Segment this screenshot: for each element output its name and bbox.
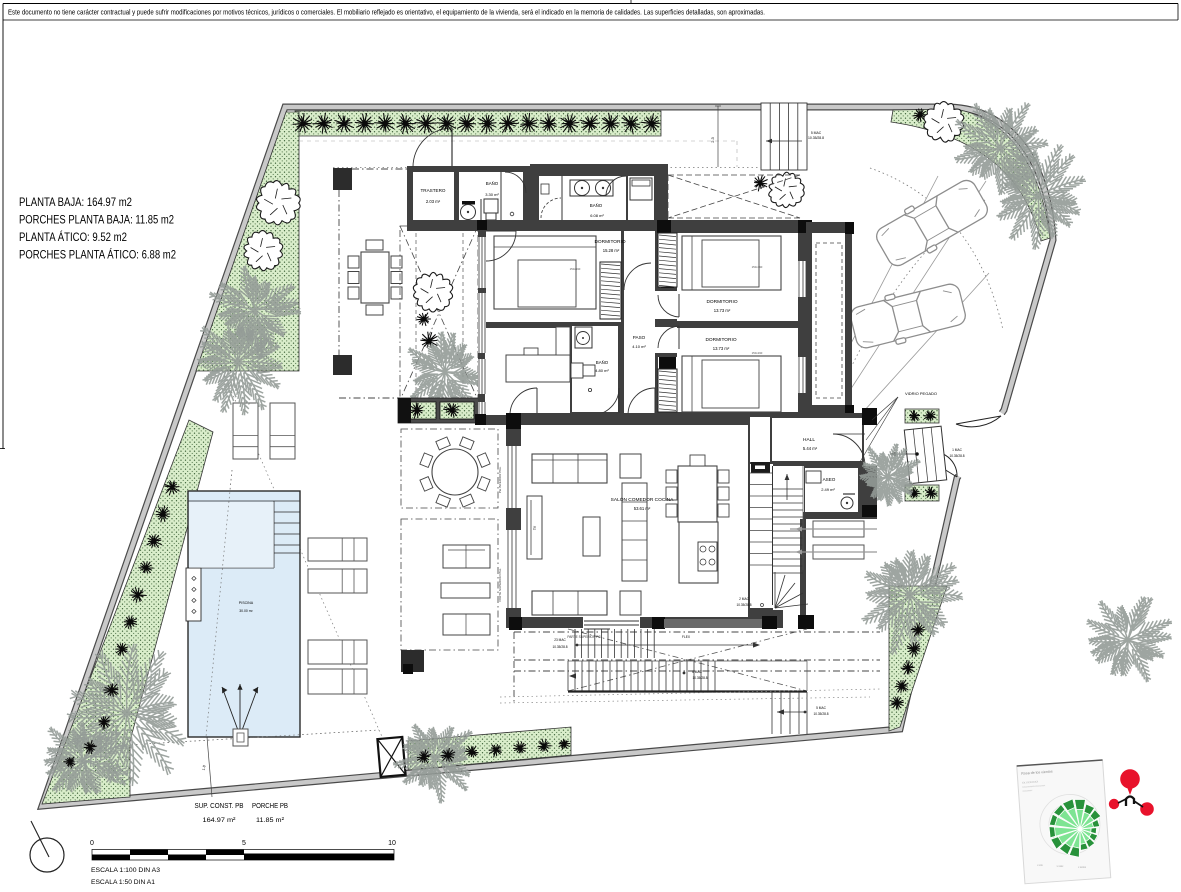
svg-text:1 MAC: 1 MAC <box>952 448 962 452</box>
svg-text:2.3: 2.3 <box>710 136 715 142</box>
svg-text:x xxxxx: x xxxxx <box>1078 866 1087 869</box>
svg-text:10.35/28.8: 10.35/28.8 <box>949 454 964 458</box>
svg-text:4.10 m²: 4.10 m² <box>632 344 646 349</box>
svg-text:23 MAC: 23 MAC <box>554 638 566 642</box>
svg-text:PASO: PASO <box>633 335 646 340</box>
svg-text:150x190: 150x190 <box>752 351 763 355</box>
svg-text:150x190: 150x190 <box>752 265 763 269</box>
svg-text:x xxx: x xxx <box>1037 864 1043 867</box>
svg-text:TV: TV <box>533 525 537 530</box>
svg-text:DORMITORIO: DORMITORIO <box>706 299 737 305</box>
svg-text:SUP. CONST. PB: SUP. CONST. PB <box>195 803 244 810</box>
svg-text:PORCHES PLANTA ÁTICO: 6.88 m2: PORCHES PLANTA ÁTICO: 6.88 m2 <box>19 248 176 262</box>
svg-text:ESCALA 1:50 DIN A1: ESCALA 1:50 DIN A1 <box>91 879 155 886</box>
svg-text:6.08 m²: 6.08 m² <box>590 213 604 218</box>
svg-text:2 MAC: 2 MAC <box>739 597 749 601</box>
svg-text:10.35/28.8: 10.35/28.8 <box>736 603 751 607</box>
svg-text:BAÑO: BAÑO <box>590 203 603 208</box>
svg-text:10.35/28.8: 10.35/28.8 <box>808 136 824 140</box>
svg-text:PORCHE PB: PORCHE PB <box>252 803 288 810</box>
svg-text:PLANTA ÁTICO: 9.52 m2: PLANTA ÁTICO: 9.52 m2 <box>19 230 127 244</box>
svg-text:13.73 m²: 13.73 m² <box>713 346 730 351</box>
svg-text:11.85 m²: 11.85 m² <box>256 817 285 824</box>
svg-text:PISCINA: PISCINA <box>239 601 254 605</box>
svg-text:ASEO: ASEO <box>823 477 836 482</box>
svg-text:HALL: HALL <box>803 437 815 443</box>
svg-text:PARTE SUPERIOR PGL: PARTE SUPERIOR PGL <box>567 635 602 639</box>
svg-text:2.49 m²: 2.49 m² <box>821 487 835 492</box>
svg-text:0: 0 <box>90 840 94 847</box>
svg-text:10.35/28.8: 10.35/28.8 <box>813 712 828 716</box>
svg-text:Este documento no tiene caráct: Este documento no tiene carácter contrac… <box>8 8 765 17</box>
svg-text:5: 5 <box>242 840 246 847</box>
svg-text:1.8: 1.8 <box>202 765 207 771</box>
svg-text:5 MAC: 5 MAC <box>816 706 826 710</box>
svg-text:TRASTERO: TRASTERO <box>420 188 445 193</box>
svg-text:15.28 m²: 15.28 m² <box>603 248 620 253</box>
svg-text:4.80 m²: 4.80 m² <box>595 368 609 373</box>
svg-text:5 MAC: 5 MAC <box>811 131 822 135</box>
svg-text:DORMITORIO: DORMITORIO <box>594 239 625 245</box>
svg-text:10.35/28.8: 10.35/28.8 <box>552 645 567 649</box>
svg-text:BAÑO: BAÑO <box>596 360 609 365</box>
svg-text:PARTE SUPERIOR PGL: PARTE SUPERIOR PGL <box>498 568 502 601</box>
svg-text:13.73 m²: 13.73 m² <box>714 308 731 313</box>
svg-text:164.97 m²: 164.97 m² <box>203 817 237 824</box>
svg-text:5.44 m²: 5.44 m² <box>803 446 818 451</box>
svg-text:SALÓN COMEDOR COCINA: SALÓN COMEDOR COCINA <box>611 496 674 503</box>
svg-text:30.00 m²: 30.00 m² <box>239 609 253 613</box>
svg-text:FLEX: FLEX <box>682 635 691 639</box>
svg-text:3.30 m²: 3.30 m² <box>485 192 499 197</box>
svg-text:VIDRIO PEGADO: VIDRIO PEGADO <box>905 391 937 396</box>
svg-text:2.03 m²: 2.03 m² <box>426 199 441 204</box>
svg-text:ESCALA 1:100 DIN A3: ESCALA 1:100 DIN A3 <box>91 867 160 874</box>
svg-text:10.35/28.8: 10.35/28.8 <box>692 676 707 680</box>
svg-text:PORCHES PLANTA BAJA: 11.85 m2: PORCHES PLANTA BAJA: 11.85 m2 <box>19 213 174 227</box>
svg-text:PLANTA BAJA: 164.97 m2: PLANTA BAJA: 164.97 m2 <box>19 195 132 209</box>
svg-text:Pte INFERIOR PGL: Pte INFERIOR PGL <box>498 466 502 493</box>
svg-text:53.61 m²: 53.61 m² <box>634 506 651 511</box>
svg-text:BAÑO: BAÑO <box>486 181 499 186</box>
svg-text:6 MAC: 6 MAC <box>692 670 702 674</box>
svg-text:10: 10 <box>388 840 396 847</box>
svg-text:150x190: 150x190 <box>570 267 581 271</box>
svg-text:DORMITORIO: DORMITORIO <box>705 337 736 343</box>
svg-text:x xxxx: x xxxx <box>1057 865 1064 868</box>
